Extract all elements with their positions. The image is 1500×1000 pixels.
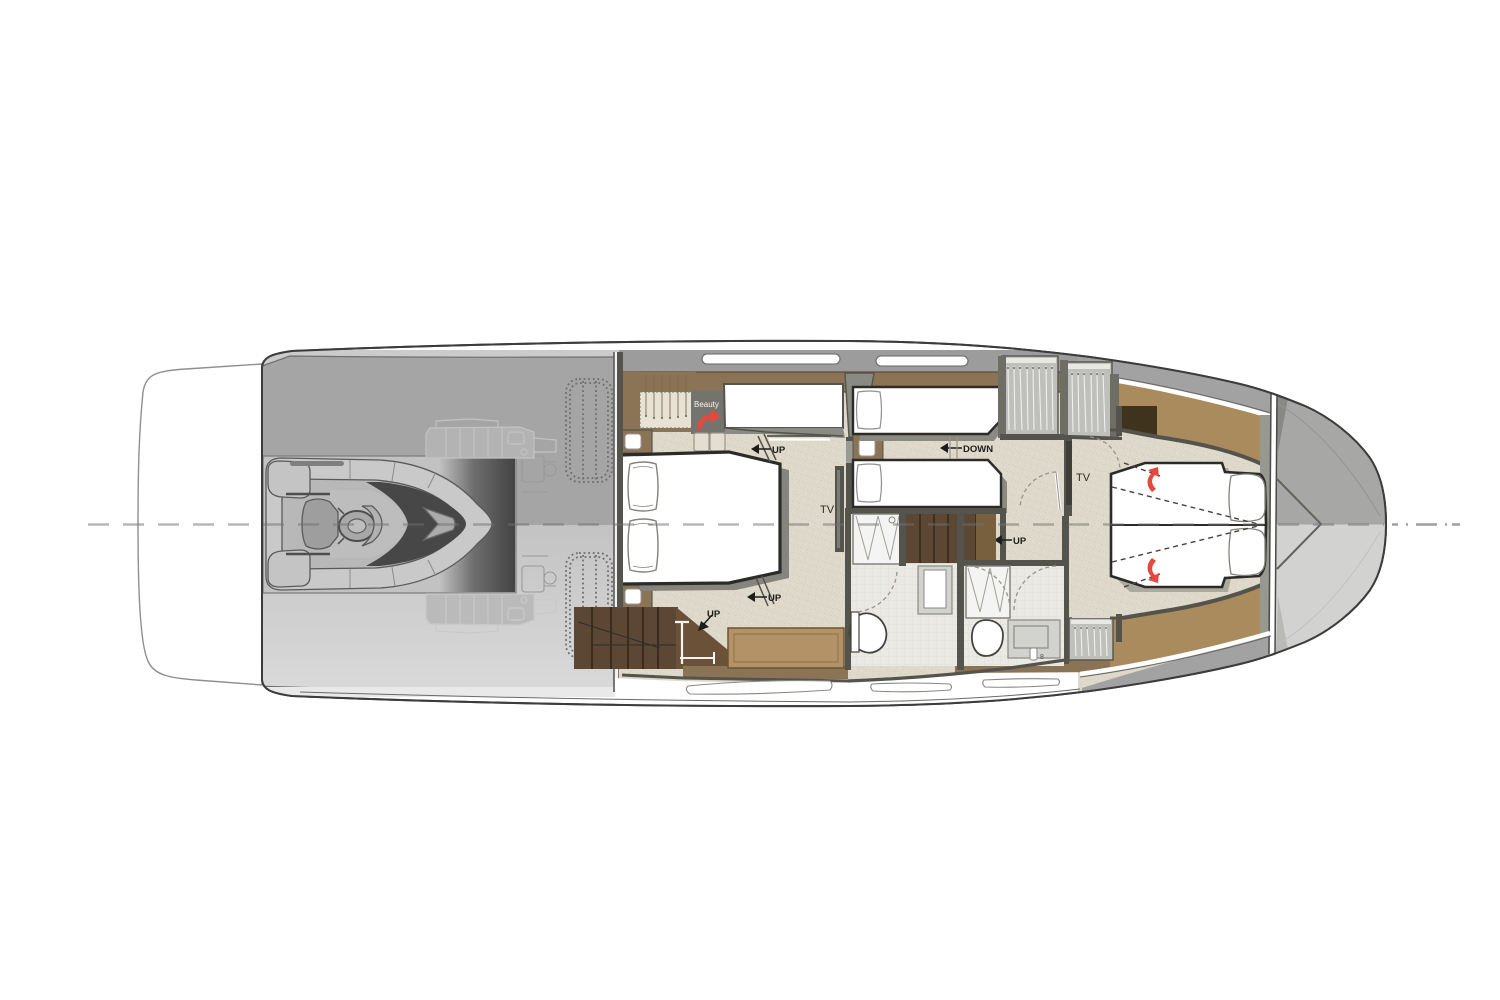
- svg-text:8: 8: [1040, 654, 1044, 661]
- svg-text:TV: TV: [1076, 472, 1091, 484]
- svg-text:UP: UP: [707, 609, 721, 620]
- svg-text:UP: UP: [768, 593, 782, 604]
- svg-text:TV: TV: [820, 504, 835, 516]
- svg-text:DOWN: DOWN: [963, 444, 993, 455]
- svg-text:UP: UP: [772, 445, 786, 456]
- svg-text:UP: UP: [1013, 536, 1027, 547]
- svg-text:Beauty: Beauty: [694, 400, 719, 409]
